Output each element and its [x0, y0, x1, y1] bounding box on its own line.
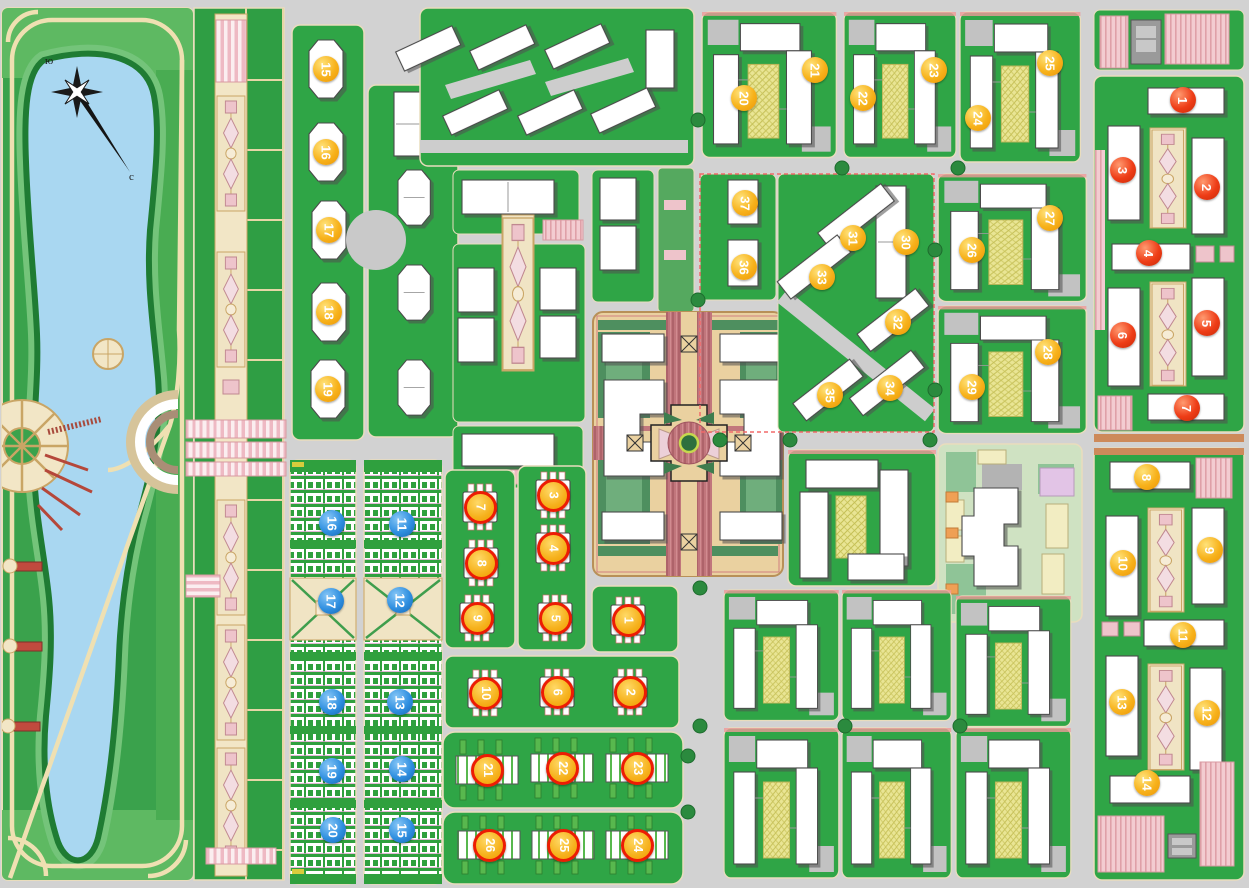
building-marker-yellow-35[interactable]: 35 — [817, 382, 843, 408]
building-marker-blue-12[interactable]: 12 — [387, 587, 413, 613]
building-marker-blue-17[interactable]: 17 — [318, 588, 344, 614]
building-marker-yellow-19[interactable]: 19 — [315, 376, 341, 402]
building-marker-yellow-25[interactable]: 25 — [1037, 50, 1063, 76]
building-marker-red-1[interactable]: 1 — [1170, 87, 1196, 113]
building-marker-ringed-25[interactable]: 25 — [547, 829, 580, 862]
building-marker-yellow-14[interactable]: 14 — [1134, 770, 1160, 796]
building-marker-blue-15[interactable]: 15 — [389, 817, 415, 843]
building-marker-yellow-21[interactable]: 21 — [802, 57, 828, 83]
building-marker-blue-14[interactable]: 14 — [389, 756, 415, 782]
building-marker-ringed-1[interactable]: 1 — [612, 604, 645, 637]
building-marker-yellow-32[interactable]: 32 — [885, 309, 911, 335]
building-marker-blue-20[interactable]: 20 — [320, 817, 346, 843]
master-plan-map: ю с — [0, 0, 1249, 888]
building-marker-yellow-10[interactable]: 10 — [1110, 550, 1136, 576]
building-marker-ringed-5[interactable]: 5 — [539, 602, 572, 635]
building-marker-yellow-11[interactable]: 11 — [1170, 622, 1196, 648]
building-marker-yellow-36[interactable]: 36 — [731, 254, 757, 280]
building-marker-yellow-37[interactable]: 37 — [732, 190, 758, 216]
building-marker-ringed-4[interactable]: 4 — [537, 532, 570, 565]
building-marker-yellow-31[interactable]: 31 — [840, 225, 866, 251]
building-marker-blue-16[interactable]: 16 — [319, 510, 345, 536]
building-markers-layer: 1516171819202122232425262728293031323334… — [0, 0, 1249, 888]
building-marker-red-3[interactable]: 3 — [1110, 157, 1136, 183]
building-marker-yellow-20[interactable]: 20 — [731, 85, 757, 111]
building-marker-ringed-26[interactable]: 26 — [473, 829, 506, 862]
building-marker-yellow-23[interactable]: 23 — [921, 57, 947, 83]
building-marker-yellow-15[interactable]: 15 — [313, 56, 339, 82]
building-marker-ringed-2[interactable]: 2 — [614, 676, 647, 709]
building-marker-ringed-23[interactable]: 23 — [621, 752, 654, 785]
building-marker-blue-19[interactable]: 19 — [319, 758, 345, 784]
building-marker-blue-18[interactable]: 18 — [319, 689, 345, 715]
building-marker-ringed-22[interactable]: 22 — [546, 752, 579, 785]
building-marker-yellow-26[interactable]: 26 — [959, 237, 985, 263]
building-marker-yellow-29[interactable]: 29 — [959, 374, 985, 400]
building-marker-yellow-27[interactable]: 27 — [1037, 205, 1063, 231]
building-marker-ringed-21[interactable]: 21 — [471, 754, 504, 787]
building-marker-red-4[interactable]: 4 — [1136, 240, 1162, 266]
building-marker-ringed-10[interactable]: 10 — [469, 677, 502, 710]
building-marker-red-6[interactable]: 6 — [1110, 322, 1136, 348]
building-marker-blue-13[interactable]: 13 — [387, 689, 413, 715]
building-marker-ringed-24[interactable]: 24 — [621, 829, 654, 862]
building-marker-ringed-3[interactable]: 3 — [537, 479, 570, 512]
building-marker-ringed-6[interactable]: 6 — [541, 676, 574, 709]
building-marker-yellow-13[interactable]: 13 — [1109, 689, 1135, 715]
building-marker-red-7[interactable]: 7 — [1174, 395, 1200, 421]
building-marker-ringed-8[interactable]: 8 — [465, 547, 498, 580]
building-marker-yellow-28[interactable]: 28 — [1035, 339, 1061, 365]
building-marker-yellow-18[interactable]: 18 — [316, 299, 342, 325]
building-marker-yellow-24[interactable]: 24 — [965, 105, 991, 131]
building-marker-yellow-33[interactable]: 33 — [809, 264, 835, 290]
building-marker-yellow-12[interactable]: 12 — [1194, 700, 1220, 726]
building-marker-red-2[interactable]: 2 — [1194, 174, 1220, 200]
building-marker-yellow-34[interactable]: 34 — [877, 375, 903, 401]
building-marker-blue-11[interactable]: 11 — [389, 511, 415, 537]
building-marker-ringed-9[interactable]: 9 — [461, 602, 494, 635]
building-marker-yellow-16[interactable]: 16 — [313, 139, 339, 165]
building-marker-ringed-7[interactable]: 7 — [464, 491, 497, 524]
building-marker-yellow-30[interactable]: 30 — [893, 229, 919, 255]
building-marker-red-5[interactable]: 5 — [1194, 310, 1220, 336]
building-marker-yellow-17[interactable]: 17 — [316, 217, 342, 243]
building-marker-yellow-9[interactable]: 9 — [1197, 537, 1223, 563]
building-marker-yellow-22[interactable]: 22 — [850, 85, 876, 111]
building-marker-yellow-8[interactable]: 8 — [1134, 464, 1160, 490]
